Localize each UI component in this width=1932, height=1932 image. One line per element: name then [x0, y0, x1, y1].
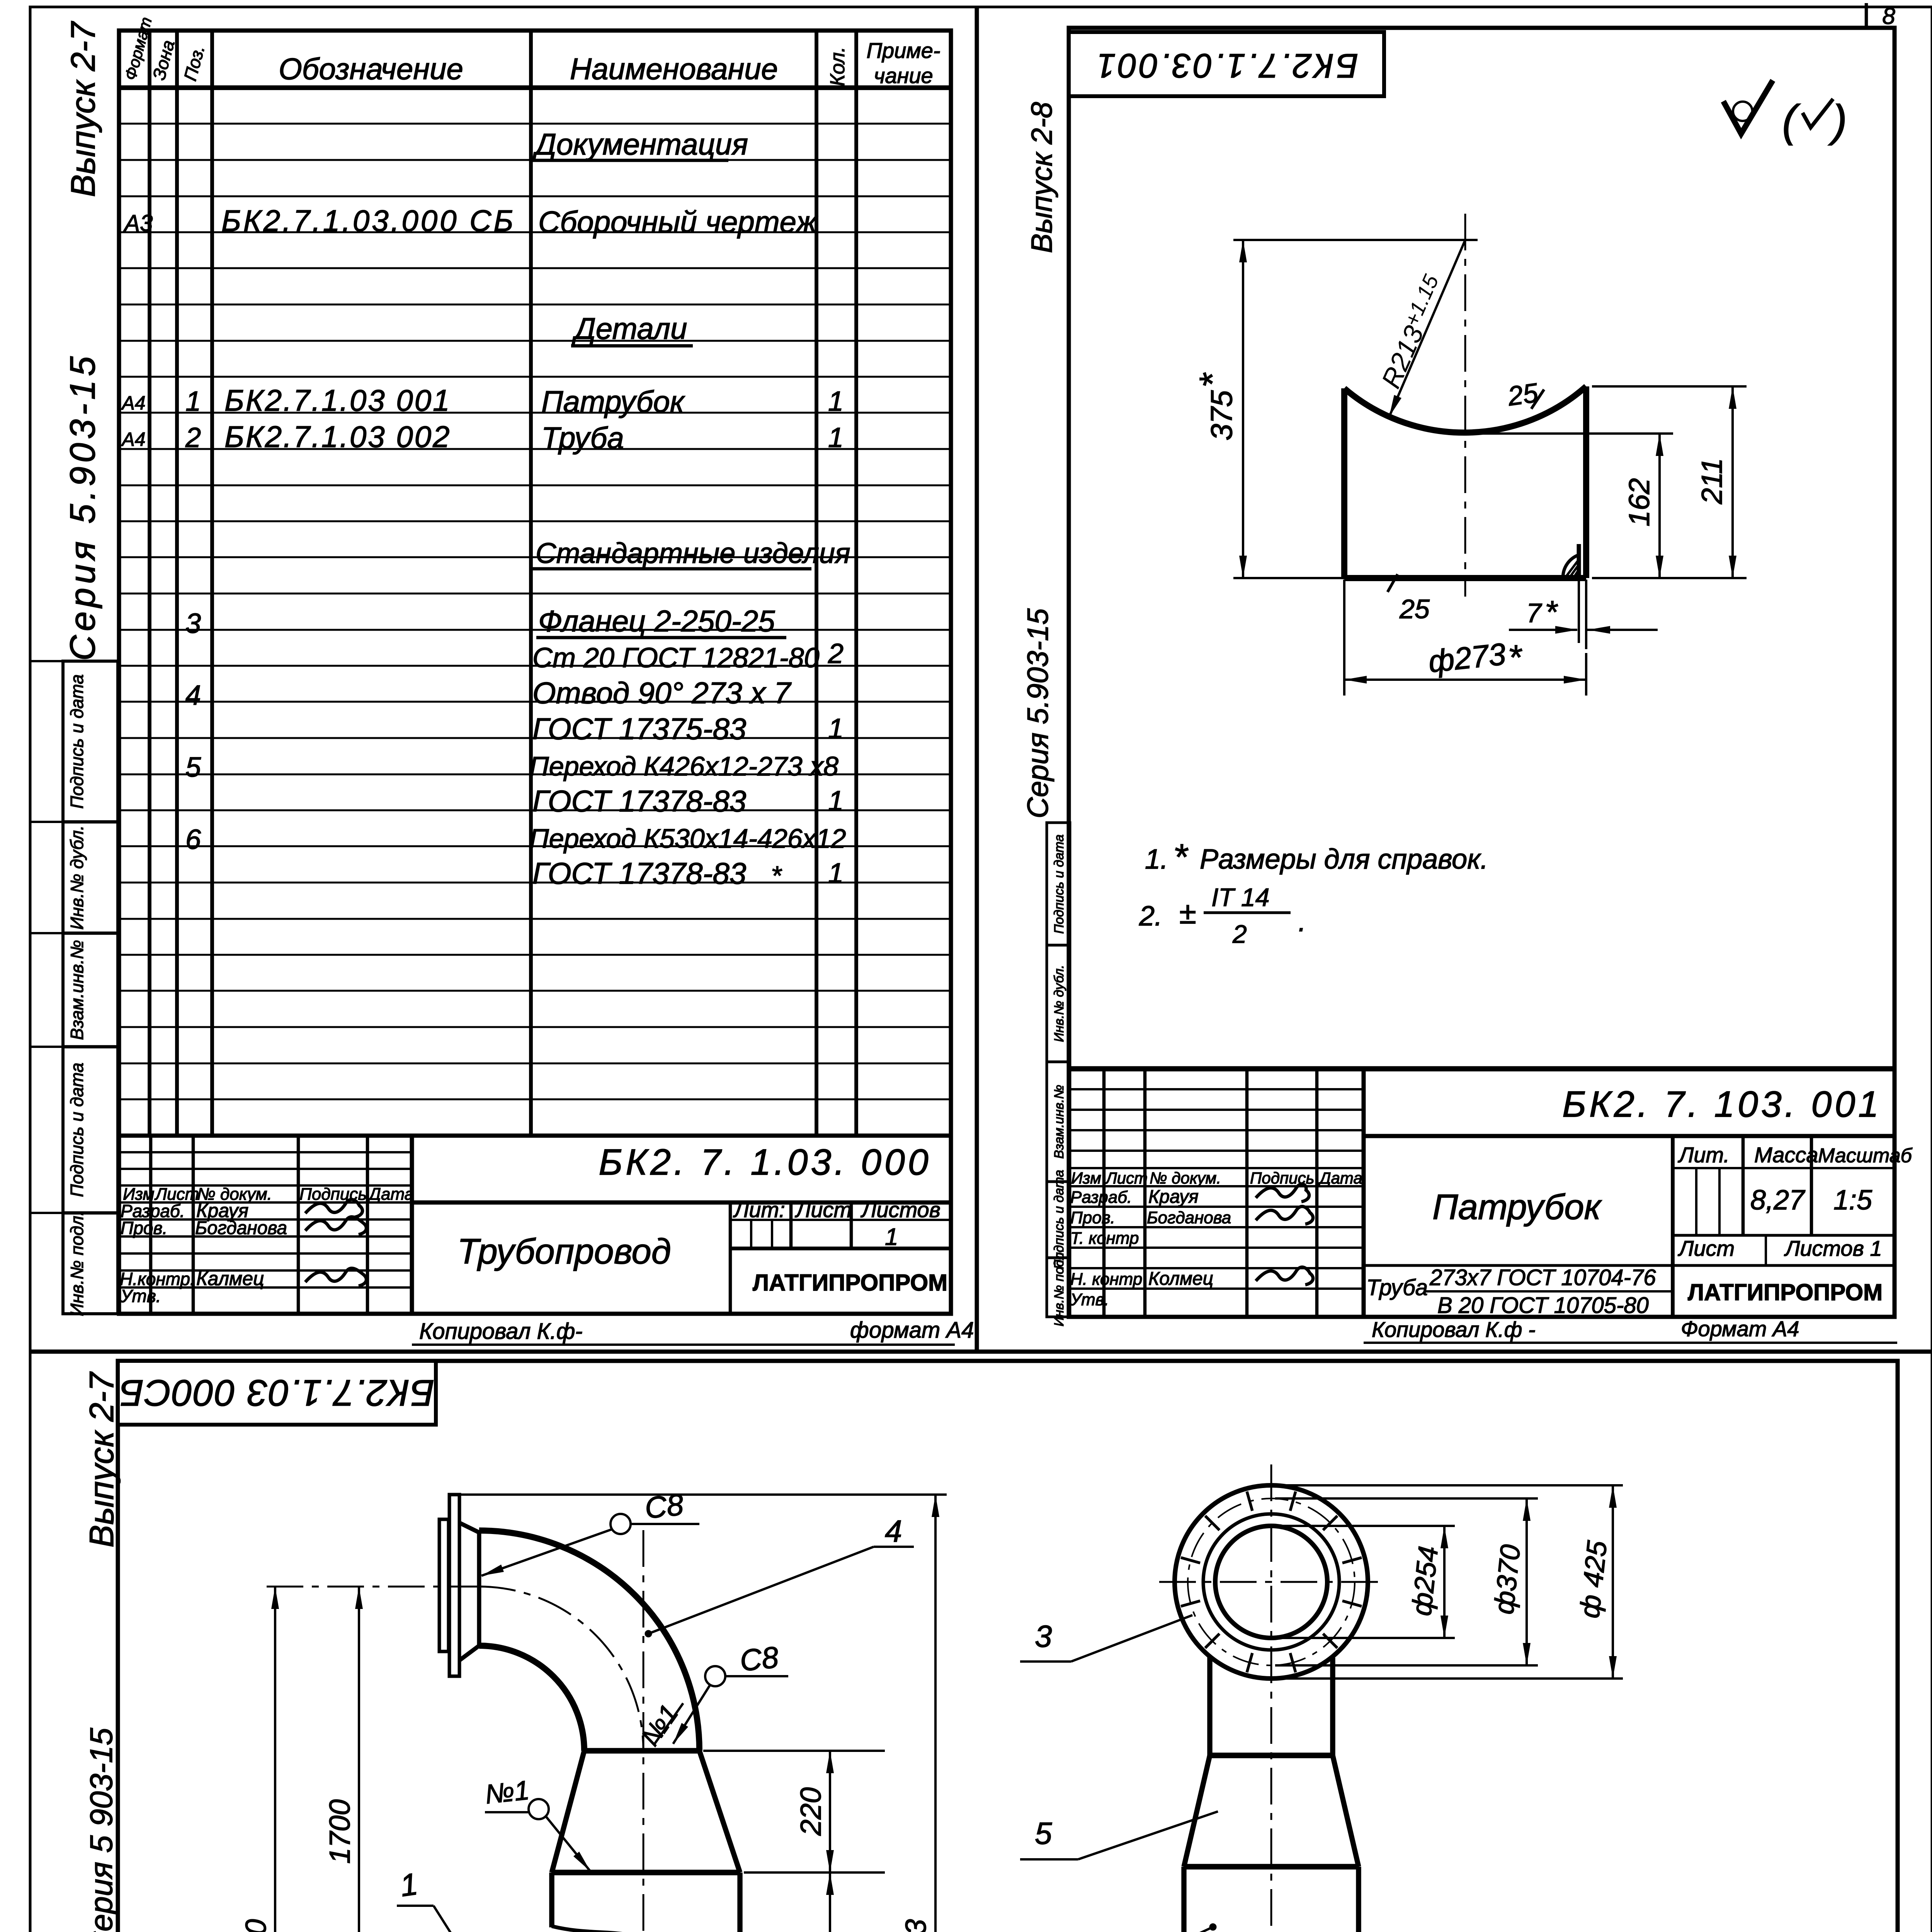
svg-text:2463: 2463 [900, 1919, 932, 1932]
svg-text:Пров.: Пров. [1070, 1208, 1115, 1227]
svg-text:*: * [771, 861, 782, 891]
svg-text:Сборочный чертеж: Сборочный чертеж [538, 205, 818, 239]
svg-text:Масштаб: Масштаб [1818, 1145, 1913, 1167]
svg-text:Листов: Листов [861, 1197, 940, 1222]
svg-text:Переход К426х12-273 х8: Переход К426х12-273 х8 [529, 751, 838, 781]
svg-text:БК2.7.1.03.001: БК2.7.1.03.001 [1095, 47, 1358, 85]
svg-text:Масса: Масса [1754, 1143, 1818, 1167]
svg-text:№ докум.: № докум. [1150, 1169, 1221, 1187]
svg-text:2: 2 [1232, 920, 1247, 948]
svg-text:3: 3 [185, 608, 201, 639]
svg-text:273х7 ГОСТ 10704-76: 273х7 ГОСТ 10704-76 [1429, 1265, 1656, 1290]
svg-text:IT 14: IT 14 [1211, 883, 1269, 912]
svg-text:2: 2 [828, 638, 844, 669]
svg-text:Крауя: Крауя [1148, 1187, 1199, 1207]
svg-text:Т. контр: Т. контр [1070, 1229, 1139, 1248]
svg-text:БК2.7.1.03.000 СБ: БК2.7.1.03.000 СБ [221, 204, 515, 238]
svg-text:3: 3 [1035, 1619, 1052, 1653]
svg-text:Обозначение: Обозначение [279, 52, 463, 86]
svg-text:ЛАТГИПРОПРОМ: ЛАТГИПРОПРОМ [753, 1270, 947, 1296]
svg-text:Приме-: Приме- [866, 38, 940, 63]
svg-text:1: 1 [885, 1224, 898, 1250]
svg-text:2250: 2250 [240, 1919, 272, 1932]
svg-text:Выпуск 2-8: Выпуск 2-8 [1026, 102, 1058, 253]
svg-text:25: 25 [1505, 378, 1540, 412]
svg-text:Размеры для справок.: Размеры для справок. [1200, 844, 1488, 875]
svg-text:Взам.инв.№: Взам.инв.№ [67, 940, 87, 1040]
svg-text:1: 1 [185, 386, 201, 417]
svg-text:Калмец: Калмец [196, 1268, 264, 1289]
svg-text:Патрубок: Патрубок [1432, 1187, 1602, 1227]
svg-text:БК2.7.1.03 001: БК2.7.1.03 001 [224, 383, 451, 417]
svg-text:5: 5 [1035, 1816, 1052, 1850]
svg-text:Листов 1: Листов 1 [1784, 1236, 1882, 1260]
svg-text:ЛАТГИПРОПРОМ: ЛАТГИПРОПРОМ [1688, 1279, 1883, 1305]
svg-text:Серия 5.903-15: Серия 5.903-15 [63, 352, 102, 661]
svg-text:ГОСТ 17378-83: ГОСТ 17378-83 [532, 784, 746, 818]
svg-text:С8: С8 [738, 1640, 780, 1678]
svg-text:Фланец 2-250-25: Фланец 2-250-25 [538, 604, 775, 638]
svg-text:4: 4 [885, 1514, 902, 1548]
svg-text:Инв.№ дубл.: Инв.№ дубл. [67, 825, 87, 930]
svg-text:375: 375 [1204, 390, 1238, 440]
svg-text:1: 1 [828, 713, 844, 744]
svg-text:Н. контр: Н. контр [1070, 1270, 1142, 1289]
svg-text:5: 5 [185, 752, 201, 783]
svg-text:№1: №1 [483, 1775, 531, 1810]
svg-text:6: 6 [185, 824, 201, 855]
svg-text:Инв.№ подл.: Инв.№ подл. [67, 1211, 87, 1316]
svg-text:Разраб.: Разраб. [1070, 1188, 1132, 1207]
svg-text:162: 162 [1623, 478, 1655, 526]
svg-text:2.: 2. [1139, 901, 1162, 932]
svg-text:Утв.: Утв. [120, 1286, 161, 1306]
svg-text:1: 1 [828, 386, 844, 417]
svg-text:Лит.: Лит. [1678, 1143, 1730, 1167]
svg-text:А4: А4 [121, 392, 145, 414]
svg-text:ГОСТ 17378-83: ГОСТ 17378-83 [532, 856, 746, 890]
svg-text:Формат А4: Формат А4 [1681, 1316, 1799, 1341]
svg-text:Документация: Документация [532, 127, 748, 161]
svg-text:Труба: Труба [1366, 1275, 1428, 1300]
svg-text:А4: А4 [121, 429, 145, 450]
svg-text:чание: чание [874, 63, 933, 88]
svg-text:Детали: Детали [571, 311, 687, 345]
svg-text:Переход К530х14-426х12: Переход К530х14-426х12 [529, 823, 846, 854]
svg-text:А3: А3 [123, 210, 153, 236]
svg-text:Лист: Лист [1678, 1236, 1735, 1260]
svg-text:220: 220 [794, 1787, 827, 1836]
svg-text:8: 8 [1882, 3, 1895, 29]
svg-text:Изм: Изм [1071, 1169, 1101, 1187]
svg-text:Отвод 90° 273 х 7: Отвод 90° 273 х 7 [532, 676, 792, 710]
svg-text:1700: 1700 [323, 1799, 356, 1864]
svg-text:Дата: Дата [1318, 1169, 1362, 1187]
svg-text:*: * [1173, 837, 1189, 878]
svg-text:Ст 20 ГОСТ 12821-80: Ст 20 ГОСТ 12821-80 [532, 643, 820, 673]
svg-text:Подпись и дата: Подпись и дата [67, 1063, 87, 1197]
svg-text:Подпись и дата: Подпись и дата [67, 674, 87, 809]
svg-text:Взам.инв.№: Взам.инв.№ [1052, 1085, 1066, 1158]
svg-text:4: 4 [185, 680, 201, 711]
svg-text:Выпуск 2-7: Выпуск 2-7 [82, 1371, 121, 1548]
svg-text:7: 7 [1526, 598, 1543, 628]
svg-text:1: 1 [828, 786, 844, 816]
svg-text:Серия 5 903-15: Серия 5 903-15 [84, 1728, 119, 1932]
svg-text:25: 25 [1399, 594, 1430, 624]
svg-text:Стандартные изделия: Стандартные изделия [536, 537, 850, 569]
svg-text:Дата: Дата [367, 1185, 414, 1204]
svg-text:Копировал К.ф -: Копировал К.ф - [1372, 1317, 1536, 1342]
svg-text:*: * [1192, 372, 1233, 388]
svg-text:Патрубок: Патрубок [541, 384, 685, 418]
svg-text:БК2. 7. 103. 001: БК2. 7. 103. 001 [1562, 1084, 1882, 1125]
svg-text:±: ± [1179, 896, 1196, 930]
svg-text:1.: 1. [1145, 844, 1168, 875]
svg-text:ГОСТ 17375-83: ГОСТ 17375-83 [532, 712, 746, 746]
svg-text:Наименование: Наименование [570, 52, 778, 86]
svg-text:.: . [1298, 906, 1306, 937]
svg-text:*: * [1508, 638, 1522, 677]
svg-text:Богданова: Богданова [195, 1218, 287, 1238]
svg-text:Лит:: Лит: [733, 1197, 785, 1222]
svg-text:8,27: 8,27 [1750, 1185, 1806, 1216]
svg-text:формат А4: формат А4 [850, 1318, 974, 1343]
svg-text:Кол.: Кол. [827, 47, 849, 86]
svg-text:Инв.№ дубл.: Инв.№ дубл. [1052, 965, 1066, 1042]
svg-text:2: 2 [185, 422, 201, 453]
svg-text:Копировал К.ф-: Копировал К.ф- [419, 1319, 583, 1344]
svg-text:1: 1 [828, 422, 844, 453]
svg-text:Лист: Лист [795, 1197, 852, 1222]
svg-text:211: 211 [1696, 458, 1728, 505]
svg-text:Подпись и дата: Подпись и дата [1052, 834, 1066, 934]
svg-text:Пров.: Пров. [121, 1218, 167, 1238]
svg-text:В 20 ГОСТ 10705-80: В 20 ГОСТ 10705-80 [1437, 1293, 1649, 1318]
svg-text:Серия 5.903-15: Серия 5.903-15 [1022, 608, 1054, 818]
svg-text:*: * [1545, 595, 1558, 630]
svg-text:Утв.: Утв. [1070, 1290, 1109, 1309]
svg-text:1: 1 [828, 858, 844, 889]
svg-text:Трубопровод: Трубопровод [457, 1232, 671, 1271]
svg-text:Колмец: Колмец [1148, 1269, 1213, 1289]
svg-text:БК2.7.1.03 000СБ: БК2.7.1.03 000СБ [119, 1372, 435, 1413]
svg-text:С8: С8 [643, 1487, 685, 1525]
svg-text:БК2.7.1.03 002: БК2.7.1.03 002 [224, 420, 451, 454]
svg-text:Инв.№ подл.: Инв.№ подл. [1052, 1248, 1066, 1327]
svg-text:Богданова: Богданова [1147, 1208, 1231, 1227]
svg-text:Выпуск 2-7: Выпуск 2-7 [64, 21, 102, 197]
svg-text:1:5: 1:5 [1833, 1185, 1872, 1216]
svg-text:БК2. 7. 1.03. 000: БК2. 7. 1.03. 000 [599, 1142, 931, 1183]
svg-text:Лист: Лист [1105, 1169, 1148, 1187]
svg-text:Труба: Труба [541, 421, 624, 455]
